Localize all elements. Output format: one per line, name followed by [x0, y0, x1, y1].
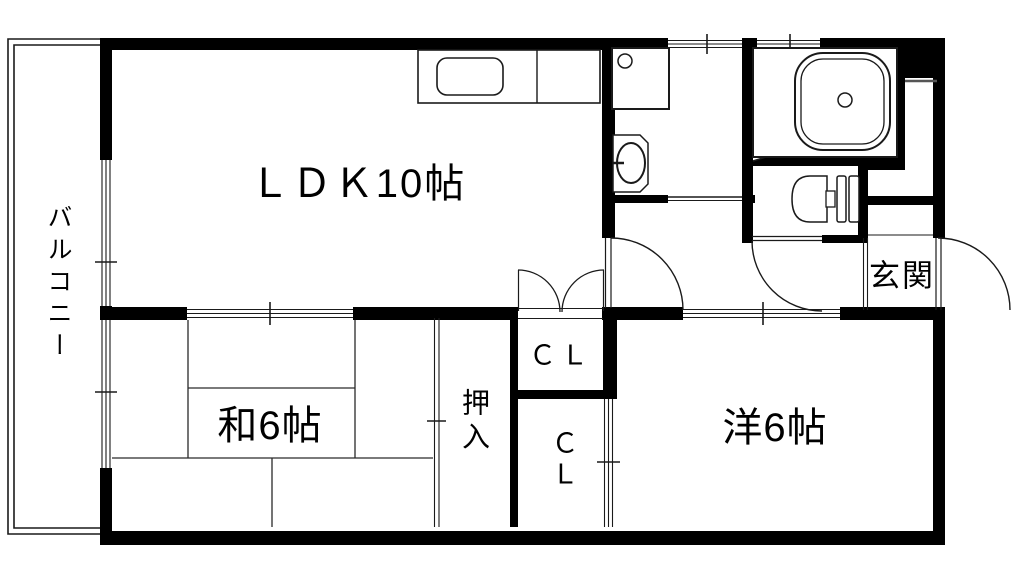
entrance-label: 玄関 [869, 251, 935, 296]
closet-upper-label: ＣＬ [529, 334, 593, 373]
door-toilet [752, 237, 822, 312]
door-entrance [936, 238, 1010, 310]
sliding-door-ldk-washitsu [187, 302, 353, 325]
window-balcony-ldk [95, 160, 117, 306]
oshiire-label: 押入 [454, 388, 494, 456]
window-top-washroom [668, 34, 742, 54]
washroom-door [668, 197, 742, 201]
kitchen-counter [418, 50, 600, 103]
oshiire-fusuma [427, 318, 446, 527]
window-balcony-washitsu [95, 320, 117, 468]
wash-basin [613, 135, 648, 192]
sliding-door-western-room [683, 302, 840, 325]
closet-lower-sliding-door [597, 399, 620, 527]
balcony-label: バルコニー [40, 204, 76, 364]
japanese-room-label: 和6帖 [217, 393, 322, 451]
toilet [792, 176, 859, 222]
washing-machine-pan [612, 48, 669, 109]
door-ldk-hall [606, 238, 684, 310]
door-closet-upper-double [518, 270, 604, 312]
bathtub [753, 48, 897, 157]
floor-plan: バルコニー ＬＤＫ10帖 和6帖 押入 ＣＬ ＣＬ 洋6帖 玄関 [0, 0, 1024, 576]
western-room-label: 洋6帖 [722, 395, 827, 453]
ldk-label: ＬＤＫ10帖 [250, 151, 467, 209]
closet-lower-label: ＣＬ [544, 429, 583, 491]
kitchen-sink [437, 58, 503, 95]
